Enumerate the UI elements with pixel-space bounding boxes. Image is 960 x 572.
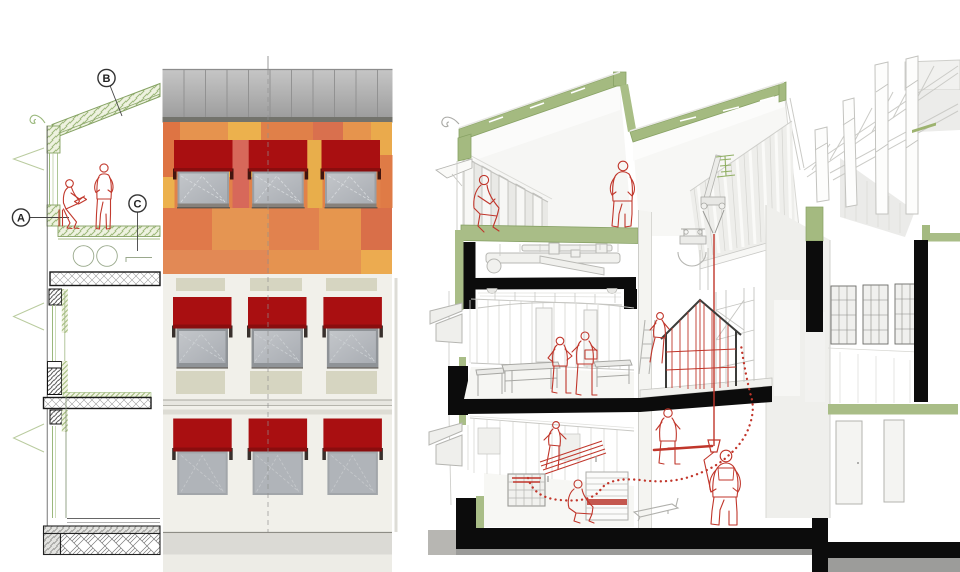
svg-text:A: A: [17, 213, 25, 225]
svg-text:B: B: [103, 73, 111, 85]
svg-text:C: C: [134, 199, 142, 211]
